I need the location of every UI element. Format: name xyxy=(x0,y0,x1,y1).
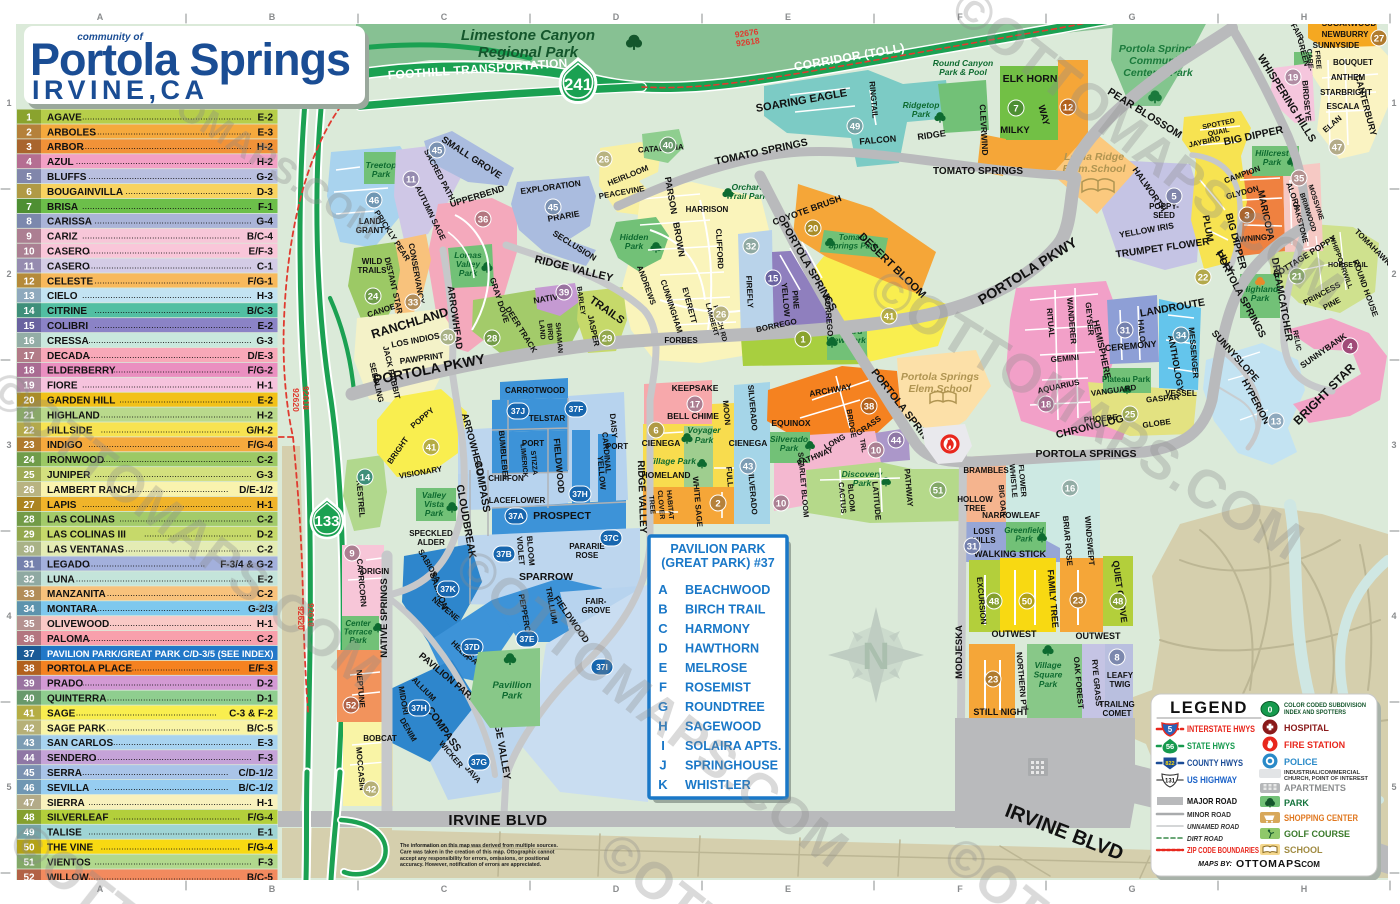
svg-text:37C: 37C xyxy=(603,533,619,543)
svg-text:SILVERLEAF: SILVERLEAF xyxy=(47,813,108,824)
svg-text:39: 39 xyxy=(559,287,570,298)
svg-text:5: 5 xyxy=(6,782,11,792)
svg-text:..............................: ........................................… xyxy=(88,171,251,181)
svg-text:BEACHWOOD: BEACHWOOD xyxy=(685,583,770,597)
svg-text:..............................: ........................................… xyxy=(113,365,240,375)
svg-text:13: 13 xyxy=(1271,416,1282,427)
svg-text:B/C-1/2: B/C-1/2 xyxy=(239,783,274,794)
svg-text:MILKY: MILKY xyxy=(1000,125,1030,136)
svg-text:..............................: ........................................… xyxy=(113,812,240,822)
svg-text:E/F-3: E/F-3 xyxy=(249,664,274,675)
svg-text:37: 37 xyxy=(23,649,35,660)
svg-text:FAIR-: FAIR- xyxy=(586,597,607,606)
svg-text:PORTOLA PLACE: PORTOLA PLACE xyxy=(47,664,132,675)
svg-text:US HIGHWAY: US HIGHWAY xyxy=(1187,775,1237,785)
svg-text:CARIZ: CARIZ xyxy=(47,232,78,243)
svg-text:TELSTAR: TELSTAR xyxy=(529,414,566,423)
svg-text:33: 33 xyxy=(23,589,35,600)
svg-text:45: 45 xyxy=(548,202,559,213)
svg-text:BOBCAT: BOBCAT xyxy=(363,734,397,743)
svg-text:TOMATO SPRINGS: TOMATO SPRINGS xyxy=(933,166,1023,177)
svg-text:OUTWEST: OUTWEST xyxy=(992,629,1037,639)
svg-text:40: 40 xyxy=(663,140,674,151)
svg-text:TWIG: TWIG xyxy=(1110,680,1131,689)
svg-text:C-3 & F-2: C-3 & F-2 xyxy=(229,708,273,719)
svg-text:(GREAT PARK) #37: (GREAT PARK) #37 xyxy=(661,556,774,570)
svg-text:FIREFLY: FIREFLY xyxy=(744,275,755,309)
svg-text:..............................: ........................................… xyxy=(119,394,251,404)
svg-text:F/G-4: F/G-4 xyxy=(247,440,273,451)
svg-text:28: 28 xyxy=(487,333,498,344)
svg-text:CASERO: CASERO xyxy=(47,261,90,272)
svg-text:MONTARA: MONTARA xyxy=(47,604,97,615)
svg-text:STATE HWYS: STATE HWYS xyxy=(1187,741,1235,751)
svg-text:PROSPECT: PROSPECT xyxy=(533,510,591,522)
svg-text:LACEFLOWER: LACEFLOWER xyxy=(489,496,546,505)
svg-text:Pavillion: Pavillion xyxy=(492,680,531,691)
svg-text:..............................: ........................................… xyxy=(94,603,240,613)
svg-text:..............................: ........................................… xyxy=(82,767,228,777)
svg-text:D-1: D-1 xyxy=(257,693,274,704)
svg-text:H-1: H-1 xyxy=(257,798,274,809)
svg-text:23: 23 xyxy=(1073,595,1084,606)
svg-text:E-2: E-2 xyxy=(257,321,273,332)
svg-text:37J: 37J xyxy=(511,406,525,416)
svg-text:KEEPSAKE: KEEPSAKE xyxy=(672,383,719,393)
svg-text:INDEX AND SPOTTERS: INDEX AND SPOTTERS xyxy=(1284,710,1346,716)
svg-text:CIENEGA: CIENEGA xyxy=(642,438,681,448)
svg-text:36: 36 xyxy=(478,214,489,225)
svg-text:G: G xyxy=(1128,884,1135,894)
svg-text:16: 16 xyxy=(1065,483,1076,494)
svg-text:6: 6 xyxy=(26,187,32,198)
svg-text:MANZANITA: MANZANITA xyxy=(47,589,106,600)
svg-text:IRVINE BLVD: IRVINE BLVD xyxy=(448,812,547,829)
svg-text:SHOPPING CENTER: SHOPPING CENTER xyxy=(1284,813,1358,823)
svg-text:MAPS BY:: MAPS BY: xyxy=(1198,861,1232,868)
svg-text:..............................: ........................................… xyxy=(94,216,251,226)
svg-text:..............................: ........................................… xyxy=(88,245,240,255)
svg-text:34: 34 xyxy=(23,604,35,615)
svg-text:30: 30 xyxy=(443,332,454,343)
svg-text:..............................: ........................................… xyxy=(76,707,217,717)
svg-text:accept any responsibility f: accept any responsibility for errors, om… xyxy=(400,856,550,862)
svg-text:56: 56 xyxy=(1166,742,1174,751)
svg-text:OTTOMAPS: OTTOMAPS xyxy=(1236,858,1302,870)
svg-text:..............................: ........................................… xyxy=(88,797,251,807)
svg-text:E/F-3: E/F-3 xyxy=(249,246,274,257)
svg-text:26: 26 xyxy=(716,309,727,320)
svg-text:E-2: E-2 xyxy=(257,112,273,123)
svg-text:4: 4 xyxy=(26,157,32,168)
svg-text:Park: Park xyxy=(695,435,715,445)
svg-text:PALOMA: PALOMA xyxy=(47,634,90,645)
svg-text:27: 27 xyxy=(1374,33,1385,44)
svg-text:8: 8 xyxy=(1114,652,1119,663)
svg-text:39: 39 xyxy=(23,679,35,690)
svg-text:9: 9 xyxy=(349,548,354,559)
svg-text:17: 17 xyxy=(690,399,701,410)
svg-text:NARROWLEAF: NARROWLEAF xyxy=(982,511,1040,520)
svg-text:Park: Park xyxy=(625,241,645,251)
svg-text:..............................: ........................................… xyxy=(101,841,240,851)
svg-text:PARK: PARK xyxy=(1284,798,1309,808)
svg-text:TRAILS: TRAILS xyxy=(358,266,388,275)
svg-text:HOSPITAL: HOSPITAL xyxy=(1284,723,1329,733)
svg-text:14: 14 xyxy=(360,472,371,483)
svg-text:..............................: ........................................… xyxy=(94,752,251,762)
svg-text:EQUINOX: EQUINOX xyxy=(771,418,811,428)
svg-text:Park: Park xyxy=(1251,293,1271,303)
svg-text:E: E xyxy=(785,12,791,22)
svg-text:F-3: F-3 xyxy=(258,857,273,868)
svg-text:SAGE PARK: SAGE PARK xyxy=(47,723,106,734)
svg-text:C-2: C-2 xyxy=(257,634,274,645)
svg-text:A: A xyxy=(97,12,104,22)
svg-text:..............................: ........................................… xyxy=(82,231,240,241)
svg-text:MAJOR ROAD: MAJOR ROAD xyxy=(1187,796,1237,806)
svg-text:B/C-4: B/C-4 xyxy=(247,232,274,243)
svg-text:46: 46 xyxy=(23,783,35,794)
svg-text:45: 45 xyxy=(23,768,35,779)
svg-text:OUTWEST: OUTWEST xyxy=(1076,631,1121,641)
svg-text:..............................: ........................................… xyxy=(132,663,240,673)
svg-text:43: 43 xyxy=(23,738,35,749)
svg-text:2: 2 xyxy=(26,127,32,138)
svg-text:CHIFFON: CHIFFON xyxy=(488,474,524,483)
svg-text:41: 41 xyxy=(23,708,35,719)
svg-text:C: C xyxy=(441,884,448,894)
svg-text:4: 4 xyxy=(6,611,11,621)
svg-text:ROSE: ROSE xyxy=(576,551,599,560)
svg-text:92620: 92620 xyxy=(291,388,301,412)
svg-text:E-1: E-1 xyxy=(257,828,273,839)
svg-text:34: 34 xyxy=(1176,330,1187,341)
svg-text:B: B xyxy=(658,602,667,617)
svg-text:.COM: .COM xyxy=(1299,860,1320,869)
svg-text:N: N xyxy=(862,636,889,678)
svg-text:2: 2 xyxy=(715,498,720,509)
svg-text:Park: Park xyxy=(1263,157,1283,167)
svg-text:D-3: D-3 xyxy=(257,187,274,198)
svg-text:BRAMBLES: BRAMBLES xyxy=(963,466,1009,475)
svg-text:17: 17 xyxy=(23,351,35,362)
svg-text:29: 29 xyxy=(602,333,613,344)
svg-text:E: E xyxy=(659,660,668,675)
svg-text:BOUGAINVILLA: BOUGAINVILLA xyxy=(47,187,123,198)
svg-text:DIRT ROAD: DIRT ROAD xyxy=(1187,834,1224,843)
svg-text:5: 5 xyxy=(26,172,32,183)
svg-text:UNNAMED ROAD: UNNAMED ROAD xyxy=(1187,822,1239,831)
svg-text:..............................: ........................................… xyxy=(94,275,240,285)
svg-text:FORBES: FORBES xyxy=(664,336,698,345)
svg-text:8: 8 xyxy=(26,217,32,228)
svg-text:13: 13 xyxy=(23,291,35,302)
svg-text:..............................: ........................................… xyxy=(94,782,228,792)
svg-text:H: H xyxy=(1301,12,1308,22)
svg-text:LUNA: LUNA xyxy=(47,574,75,585)
svg-text:11: 11 xyxy=(406,174,417,185)
svg-text:SPECKLED: SPECKLED xyxy=(409,529,453,538)
svg-text:GOLF COURSE: GOLF COURSE xyxy=(1284,829,1350,839)
svg-text:LEAFY: LEAFY xyxy=(1107,671,1134,680)
svg-text:G/H-2: G/H-2 xyxy=(246,425,273,436)
svg-text:26: 26 xyxy=(23,485,35,496)
svg-text:The information on this map wa: The information on this map was derived … xyxy=(400,843,559,849)
svg-text:INTERSTATE HWYS: INTERSTATE HWYS xyxy=(1187,724,1255,734)
svg-text:CARISSA: CARISSA xyxy=(47,217,92,228)
svg-text:..............................: ........................................… xyxy=(101,409,252,419)
svg-text:LOST: LOST xyxy=(973,527,994,536)
svg-text:29: 29 xyxy=(23,530,35,541)
svg-text:30: 30 xyxy=(23,544,35,555)
svg-text:ORIGIN: ORIGIN xyxy=(361,567,390,576)
svg-text:15: 15 xyxy=(23,321,35,332)
svg-text:SIERRA: SIERRA xyxy=(47,798,85,809)
svg-text:31: 31 xyxy=(23,559,35,570)
svg-text:B/C-5: B/C-5 xyxy=(247,723,274,734)
svg-text:SEVILLA: SEVILLA xyxy=(47,783,89,794)
svg-text:38: 38 xyxy=(23,664,35,675)
svg-text:F/G-4: F/G-4 xyxy=(247,813,273,824)
svg-text:PORT: PORT xyxy=(522,439,544,448)
svg-text:5: 5 xyxy=(1168,725,1173,734)
svg-text:7: 7 xyxy=(26,202,32,213)
svg-text:37H: 37H xyxy=(411,703,427,713)
svg-text:COLIBRI: COLIBRI xyxy=(47,321,88,332)
svg-text:25: 25 xyxy=(23,470,35,481)
svg-text:OLIVEWOOD: OLIVEWOOD xyxy=(47,619,109,630)
svg-text:Park: Park xyxy=(780,443,800,453)
svg-text:Park: Park xyxy=(1039,679,1059,689)
svg-text:PAVILION PARK/GREAT PARK C/D-3: PAVILION PARK/GREAT PARK C/D-3/5 (SEE IN… xyxy=(47,649,273,659)
svg-text:AZUL: AZUL xyxy=(47,157,74,168)
svg-text:27: 27 xyxy=(23,500,35,511)
svg-text:Limestone Canyon: Limestone Canyon xyxy=(461,27,595,44)
svg-text:37D: 37D xyxy=(464,642,480,652)
svg-text:14: 14 xyxy=(23,306,35,317)
svg-text:C-2: C-2 xyxy=(257,515,274,526)
svg-text:4: 4 xyxy=(1391,611,1396,621)
svg-text:CITRINE: CITRINE xyxy=(47,306,87,317)
svg-text:PORT: PORT xyxy=(606,442,628,451)
svg-text:1: 1 xyxy=(800,334,806,345)
svg-text:1: 1 xyxy=(6,98,11,108)
svg-text:Voyager: Voyager xyxy=(687,425,721,435)
svg-text:G-3: G-3 xyxy=(256,336,273,347)
svg-text:COUNTY HWYS: COUNTY HWYS xyxy=(1187,758,1243,768)
svg-text:F-1: F-1 xyxy=(258,202,273,213)
svg-text:LAS VENTANAS: LAS VENTANAS xyxy=(47,544,124,555)
svg-text:24: 24 xyxy=(23,455,35,466)
svg-text:B: B xyxy=(269,884,276,894)
svg-text:accuracy. However, notificatio: accuracy. However, notification of error… xyxy=(400,862,542,868)
svg-text:52: 52 xyxy=(346,700,357,711)
svg-text:..............................: ........................................… xyxy=(125,186,251,196)
svg-text:NEWBURRY: NEWBURRY xyxy=(1322,30,1369,39)
svg-text:38: 38 xyxy=(864,401,875,412)
svg-text:PAVILION PARK: PAVILION PARK xyxy=(670,542,765,556)
svg-text:241: 241 xyxy=(564,75,592,94)
svg-text:SAN CARLOS: SAN CARLOS xyxy=(47,738,113,749)
svg-text:49: 49 xyxy=(850,121,861,132)
svg-text:COLOR CODED SUBDIVISION: COLOR CODED SUBDIVISION xyxy=(1284,703,1366,709)
svg-text:44: 44 xyxy=(23,753,35,764)
svg-text:44: 44 xyxy=(891,435,902,446)
svg-text:CIENEGA: CIENEGA xyxy=(729,438,768,448)
svg-text:..............................: ........................................… xyxy=(88,350,240,360)
svg-text:Village Park: Village Park xyxy=(648,456,697,466)
svg-text:48: 48 xyxy=(1113,596,1124,607)
svg-text:..............................: ........................................… xyxy=(88,827,251,837)
svg-text:D/E-1/2: D/E-1/2 xyxy=(239,485,273,496)
svg-text:LEGADO: LEGADO xyxy=(47,559,90,570)
svg-text:37F: 37F xyxy=(569,404,584,414)
svg-text:HAWTHORN: HAWTHORN xyxy=(685,642,759,656)
svg-text:ARBOLES: ARBOLES xyxy=(47,127,96,138)
svg-text:28: 28 xyxy=(23,515,35,526)
svg-text:C/D-1/2: C/D-1/2 xyxy=(239,768,274,779)
svg-text:50: 50 xyxy=(1022,596,1033,607)
svg-text:41: 41 xyxy=(426,442,437,453)
svg-text:..............................: ........................................… xyxy=(76,156,252,166)
svg-text:D: D xyxy=(613,12,620,22)
svg-text:16: 16 xyxy=(23,336,35,347)
svg-text:37G: 37G xyxy=(471,757,487,767)
svg-text:WILD: WILD xyxy=(362,257,383,266)
svg-text:3: 3 xyxy=(6,440,11,450)
svg-text:F/G-2: F/G-2 xyxy=(247,366,273,377)
svg-text:CARROTWOOD: CARROTWOOD xyxy=(505,386,565,395)
svg-text:822: 822 xyxy=(1165,761,1174,767)
svg-text:22: 22 xyxy=(1198,272,1209,283)
svg-text:10: 10 xyxy=(871,445,882,456)
svg-text:32: 32 xyxy=(23,574,35,585)
svg-text:31: 31 xyxy=(1120,325,1131,336)
svg-text:E: E xyxy=(785,884,791,894)
svg-text:..............................: ........................................… xyxy=(82,201,252,211)
svg-text:131: 131 xyxy=(1165,779,1176,785)
svg-text:TRAILNG: TRAILNG xyxy=(1099,700,1135,709)
svg-text:H-1: H-1 xyxy=(257,500,274,511)
svg-text:9: 9 xyxy=(26,232,32,243)
svg-text:APARTMENTS: APARTMENTS xyxy=(1284,783,1346,793)
svg-text:ZIP CODE BOUNDARIES: ZIP CODE BOUNDARIES xyxy=(1187,846,1260,855)
svg-text:DECADA: DECADA xyxy=(47,351,90,362)
svg-text:..............................: ........................................… xyxy=(88,633,251,643)
svg-text:D/E-3: D/E-3 xyxy=(247,351,273,362)
svg-text:Park: Park xyxy=(912,109,932,119)
svg-text:7: 7 xyxy=(1013,103,1018,114)
svg-text:G-4: G-4 xyxy=(256,217,273,228)
svg-text:SAGE: SAGE xyxy=(47,708,76,719)
svg-text:42: 42 xyxy=(366,784,377,795)
svg-text:SENDERO: SENDERO xyxy=(47,753,97,764)
svg-text:35: 35 xyxy=(1294,173,1305,184)
svg-text:H: H xyxy=(1301,884,1308,894)
svg-text:..............................: ........................................… xyxy=(82,678,252,688)
svg-text:G-3: G-3 xyxy=(256,470,273,481)
svg-text:..............................: ........................................… xyxy=(107,618,252,628)
svg-text:CHURCH, POINT OF INTEREST: CHURCH, POINT OF INTEREST xyxy=(1284,776,1368,782)
svg-text:IRVINE,CA: IRVINE,CA xyxy=(32,75,209,105)
svg-text:51: 51 xyxy=(933,485,944,496)
svg-text:NATIVE SPRINGS: NATIVE SPRINGS xyxy=(379,578,390,658)
svg-text:..............................: ........................................… xyxy=(113,737,252,747)
svg-text:BIRCH TRAIL: BIRCH TRAIL xyxy=(685,603,766,617)
svg-text:SEED: SEED xyxy=(1153,211,1175,220)
svg-text:HOMELAND: HOMELAND xyxy=(641,470,690,480)
svg-text:D-2: D-2 xyxy=(257,530,274,541)
svg-text:COMET: COMET xyxy=(1103,709,1132,718)
svg-text:..............................: ........................................… xyxy=(94,305,240,315)
svg-text:CELESTE: CELESTE xyxy=(47,276,93,287)
svg-text:K: K xyxy=(658,777,668,792)
svg-text:Park: Park xyxy=(459,268,479,278)
svg-text:AGAVE: AGAVE xyxy=(47,112,82,123)
svg-text:..............................: ........................................… xyxy=(94,320,251,330)
svg-text:37H: 37H xyxy=(572,489,588,499)
svg-text:CRESSA: CRESSA xyxy=(47,336,89,347)
svg-text:3: 3 xyxy=(26,142,32,153)
svg-text:C: C xyxy=(658,621,668,636)
svg-text:20: 20 xyxy=(808,223,819,234)
svg-text:C-2: C-2 xyxy=(257,455,274,466)
svg-text:45: 45 xyxy=(432,145,443,156)
svg-text:..............................: ........................................… xyxy=(82,380,252,390)
svg-text:D: D xyxy=(658,641,667,656)
svg-text:E-2: E-2 xyxy=(257,395,273,406)
svg-text:35: 35 xyxy=(23,619,35,630)
svg-text:10: 10 xyxy=(776,498,787,509)
svg-text:FULL: FULL xyxy=(724,466,735,487)
svg-text:MELROSE: MELROSE xyxy=(685,661,747,675)
svg-text:H-3: H-3 xyxy=(257,291,274,302)
svg-text:PRADO: PRADO xyxy=(47,679,83,690)
svg-text:33: 33 xyxy=(408,297,419,308)
svg-text:E-3: E-3 xyxy=(257,738,273,749)
svg-text:2: 2 xyxy=(6,269,11,279)
svg-text:BIRD: BIRD xyxy=(545,323,553,341)
svg-text:ALDER: ALDER xyxy=(417,538,445,547)
svg-text:42: 42 xyxy=(23,723,35,734)
svg-text:26: 26 xyxy=(599,154,610,165)
svg-text:5: 5 xyxy=(1391,782,1396,792)
svg-text:..............................: ........................................… xyxy=(88,335,251,345)
svg-text:BLUFFS: BLUFFS xyxy=(47,172,87,183)
svg-text:0: 0 xyxy=(1268,705,1273,715)
svg-text:BRISA: BRISA xyxy=(47,202,78,213)
svg-text:2: 2 xyxy=(1391,269,1396,279)
svg-text:B: B xyxy=(269,12,276,22)
svg-text:15: 15 xyxy=(768,273,779,284)
svg-text:Square: Square xyxy=(1034,670,1063,680)
svg-text:LAS COLINAS III: LAS COLINAS III xyxy=(47,530,126,541)
svg-text:..............................: ........................................… xyxy=(82,290,252,300)
svg-text:48: 48 xyxy=(989,596,1000,607)
svg-text:J: J xyxy=(659,758,666,773)
svg-text:6: 6 xyxy=(653,425,658,436)
svg-text:WALKING STICK: WALKING STICK xyxy=(974,549,1046,559)
svg-text:11: 11 xyxy=(24,261,35,272)
svg-text:36: 36 xyxy=(23,634,35,645)
svg-text:LEGEND: LEGEND xyxy=(1170,699,1248,717)
svg-text:12: 12 xyxy=(23,276,35,287)
svg-text:G: G xyxy=(1128,12,1135,22)
svg-text:B/C-3: B/C-3 xyxy=(247,306,274,317)
svg-text:HARMONY: HARMONY xyxy=(685,622,751,636)
svg-text:F-3: F-3 xyxy=(258,753,273,764)
